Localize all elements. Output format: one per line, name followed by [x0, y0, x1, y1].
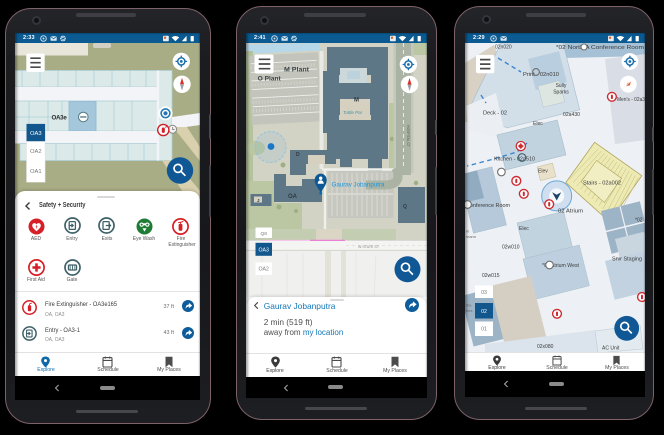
svg-text:OA3e: OA3e [52, 115, 68, 122]
svg-text:Print - 02n010: Print - 02n010 [523, 72, 559, 78]
svg-text:Srvr Staging: Srvr Staging [612, 257, 642, 263]
svg-text:Sparks: Sparks [553, 90, 569, 96]
svg-text:Sully: Sully [556, 83, 567, 89]
svg-text:OA3: OA3 [259, 247, 269, 253]
svg-text:O Plant: O Plant [258, 76, 282, 83]
svg-text:Elec: Elec [533, 121, 543, 127]
svg-text:Elev: Elev [538, 169, 548, 175]
svg-text:hes: hes [466, 308, 472, 313]
svg-text:Elec: Elec [519, 226, 529, 232]
svg-text:*02: *02 [635, 218, 643, 224]
svg-text:02x080: 02x080 [537, 344, 554, 350]
svg-text:02 Atrium: 02 Atrium [558, 209, 583, 215]
svg-text:Tuttle Par: Tuttle Par [343, 110, 363, 115]
svg-text:M Plant: M Plant [284, 67, 310, 74]
svg-text:OA2: OA2 [259, 267, 269, 273]
svg-text:M: M [354, 98, 359, 104]
svg-text:Men's - 02a3: Men's - 02a3 [617, 97, 645, 103]
svg-text:02w015: 02w015 [482, 273, 500, 279]
svg-text:OA: OA [288, 194, 298, 200]
svg-text:Conference Room: Conference Room [466, 203, 510, 209]
svg-text:01: 01 [481, 327, 487, 333]
svg-text:Kitchen - 02a510: Kitchen - 02a510 [494, 157, 535, 163]
svg-text:02w010: 02w010 [502, 245, 520, 251]
svg-text:Stairs - 02a002: Stairs - 02a002 [583, 181, 621, 187]
svg-text:Gaurav Jobanputra: Gaurav Jobanputra [332, 182, 385, 189]
svg-text:Deck - 02: Deck - 02 [483, 111, 507, 117]
svg-text:D: D [296, 152, 300, 158]
svg-text:m: m [466, 229, 470, 234]
svg-text:mann: mann [466, 234, 476, 239]
svg-text:OA2: OA2 [30, 149, 42, 155]
svg-text:Q8: Q8 [260, 231, 267, 237]
svg-text:AC Unit: AC Unit [602, 346, 620, 352]
svg-text:03: 03 [481, 290, 487, 296]
svg-text:02: 02 [481, 309, 487, 315]
svg-text:OA1: OA1 [30, 169, 42, 175]
svg-text:02a430: 02a430 [563, 112, 580, 118]
svg-text:the: the [466, 303, 472, 308]
svg-text:HOSPITAL CT: HOSPITAL CT [406, 125, 410, 147]
svg-text:02n020: 02n020 [495, 45, 512, 51]
svg-text:*02 North A Conference Room: *02 North A Conference Room [556, 45, 644, 51]
svg-text:Q: Q [403, 204, 407, 210]
svg-text:W STATE ST: W STATE ST [358, 245, 380, 249]
svg-text:OA3: OA3 [30, 131, 42, 137]
